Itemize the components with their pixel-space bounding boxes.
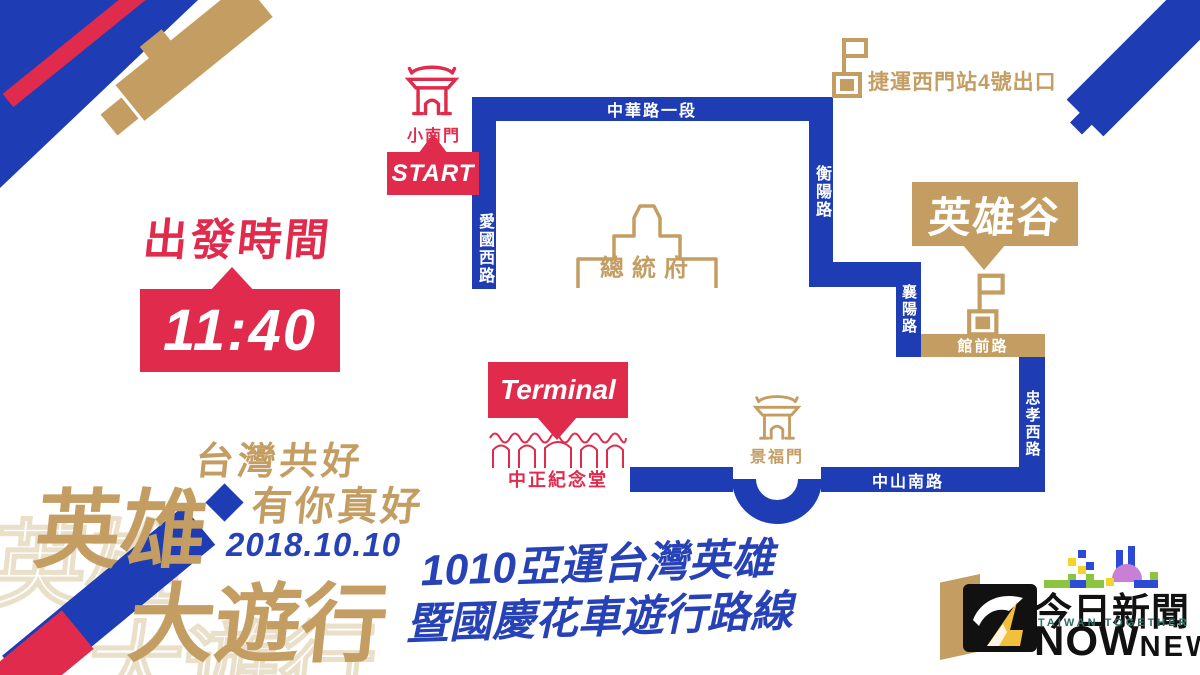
poster-canvas: 英雄 大遊行 出發時間 11:40 台灣共好 有你真好 英雄 2018.10.1… [0,0,1200,675]
title-parade: 大遊行 [123,554,394,675]
departure-time-label: 出發時間 [141,204,336,268]
logo-pixel [1150,572,1158,580]
start-bubble: START [387,152,479,195]
nownews-news-text: NEWS [1140,632,1200,662]
hero-valley-bubble-pointer [962,244,1006,270]
terminal-bubble-pointer [536,416,578,440]
start-bubble-pointer [418,134,448,154]
route-segment-hengyang: 衡陽路 [809,97,833,287]
xiaonanmen-gate-icon [404,60,460,120]
street-label-guanqian: 館前路 [957,335,1008,356]
street-label-zhongxiao-west: 忠孝西路 [1022,390,1043,458]
hero-valley-label: 英雄谷 [926,184,1063,245]
logo-pixel [1068,558,1076,566]
route-title: 1010亞運台灣英雄 暨國慶花車遊行路線 [403,532,793,651]
start-label: START [392,160,475,188]
jingfumen-label: 景福門 [750,443,804,467]
route-segment-zhonghua: 中華路一段 [472,97,832,121]
route-segment-zhongshan-south: 中山南路 [630,467,1045,492]
terminal-bubble: Terminal [488,362,628,418]
cks-memorial-label: 中正紀念堂 [488,466,628,492]
hero-valley-flag-icon [965,270,1011,338]
street-label-hengyang: 衡陽路 [809,165,833,219]
logo-pixel [1086,562,1094,570]
nownews-now-text: NOW [1034,620,1140,662]
presidential-office-label: 總統府 [600,248,696,283]
jingfumen-gate-icon [751,390,803,444]
event-date: 2018.10.10 [226,526,401,564]
nownews-emblem [963,584,1037,652]
mrt-exit-label: 捷運西門站4號出口 [868,66,1057,96]
street-label-xiangyang: 襄陽路 [898,284,919,335]
nownews-eagle-icon [963,584,1037,652]
logo-pixel [1078,550,1086,558]
time-bubble: 11:40 [140,289,340,372]
slogan-line2: 有你真好 [249,474,427,532]
terminal-label: Terminal [500,374,616,406]
logo-pixel [1078,566,1086,574]
route-segment-xiangyang: 襄陽路 [896,262,921,357]
nownews-brand-en: NOW NEWS [1034,620,1200,662]
street-label-zhongshan-south: 中山南路 [872,468,944,492]
street-label-zhonghua: 中華路一段 [607,97,697,121]
departure-time-value: 11:40 [163,297,317,364]
street-label-aiguo-west: 愛國西路 [472,213,496,289]
hero-valley-bubble: 英雄谷 [912,182,1078,246]
